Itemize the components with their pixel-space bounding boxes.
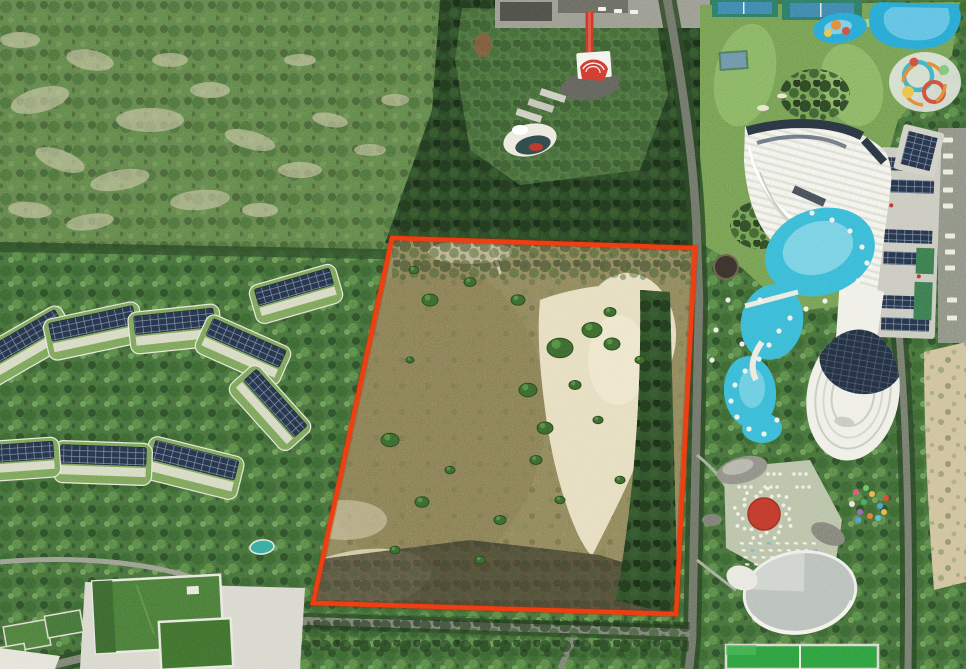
- aerial-photo: [0, 0, 966, 669]
- aerial-photo-canvas: [0, 0, 966, 669]
- photo-grain-overlay: [0, 0, 966, 669]
